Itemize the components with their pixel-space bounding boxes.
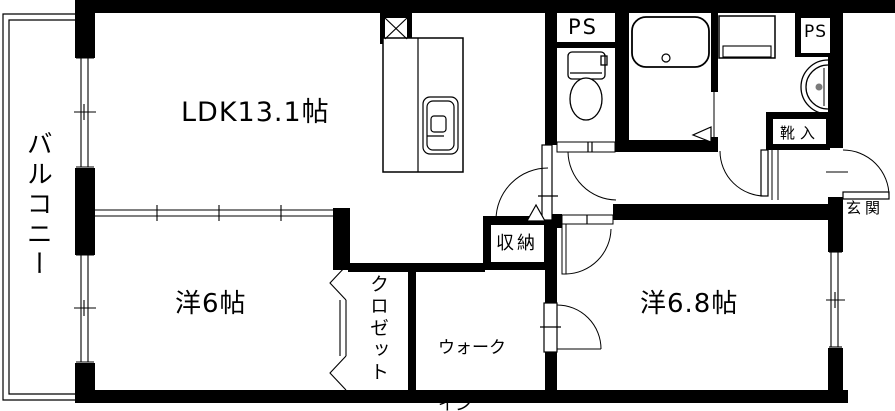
bedroom-east-label: 洋6.8帖 [640,291,738,318]
closet-label: クロゼット [367,274,387,384]
closet-bifold-doors [330,266,346,390]
walk-in-closet-label-line2: イン [438,396,523,411]
washroom-door [720,150,768,196]
bath-door-symbol [693,92,714,142]
toilet-door [557,142,616,200]
duct-x-icon [385,18,407,39]
walk-in-closet-label-line1: ウォーク [438,339,523,358]
walk-in-closet-door [540,303,601,352]
ldk-label: LDK13.1帖 [181,99,330,127]
bathtub-icon [632,17,709,67]
pipe-space-entry-label: PS [804,24,827,42]
walk-in-closet-label: ウォーク イン クロゼット [438,301,523,411]
bedroom-east-door [562,215,613,274]
ldk-door [496,145,558,221]
entrance-door [826,150,889,199]
entrance-step-line [772,150,778,200]
bedroom-west-label: 洋6帖 [175,291,247,318]
washing-machine-pan-icon [719,16,775,58]
shoe-cabinet-label: 靴入 [780,126,820,142]
balcony-label: バルコニー [23,130,50,280]
floor-plan: LDK13.1帖 洋6帖 洋6.8帖 バルコニー クロゼット ウォーク イン ク… [0,0,895,411]
storage-label: 収納 [496,235,538,254]
washbasin-icon [801,60,828,114]
entrance-label: 玄関 [846,201,884,217]
pipe-space-toilet-label: PS [568,16,598,38]
partition-track [95,205,333,221]
toilet-icon [568,52,607,120]
